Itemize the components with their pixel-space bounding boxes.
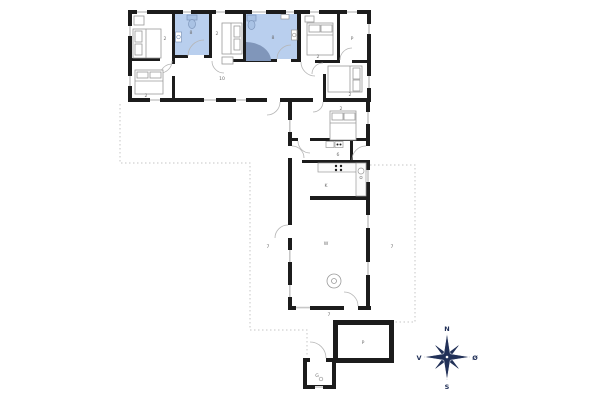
- stove-burner-icon: [340, 165, 342, 167]
- compass-east-label: Ø: [472, 354, 478, 362]
- floor-plan-svg: 2 8 2 2 8 10 2 P 2 2 6 K W 7 7 7 P G N S…: [0, 0, 600, 400]
- room-label-storage: P: [351, 36, 354, 42]
- compass-rose-icon: N S V Ø: [416, 325, 478, 391]
- compass-center: [446, 356, 449, 359]
- toilet-tank-icon: [247, 15, 256, 21]
- room-label-kitchen: K: [324, 183, 328, 189]
- room-label-carport: P: [362, 340, 365, 346]
- bed-nw-icon: [133, 29, 161, 58]
- kitchen-fixtures: [318, 163, 366, 196]
- dresser-ne-icon: [305, 16, 314, 22]
- stove-burner-icon: [335, 165, 337, 167]
- bed-mid-icon: [330, 111, 356, 140]
- wood-stove-icon: [327, 274, 341, 288]
- stove-burner-icon: [340, 169, 342, 171]
- toilet-icon: [248, 21, 255, 30]
- toilet-icon: [189, 20, 196, 29]
- room-label-terrace-east: 7: [391, 244, 394, 250]
- knob-icon: [337, 144, 339, 146]
- terrace-dashed-outline: [120, 104, 415, 356]
- room-label-bedroom-nw: 2: [164, 36, 167, 42]
- shelf-icon: [281, 15, 289, 20]
- compass-south-label: S: [445, 383, 450, 391]
- bed-n-icon: [222, 23, 242, 54]
- room-label-bathroom-large: 8: [272, 35, 275, 41]
- floor-plan-page: 2 8 2 2 8 10 2 P 2 2 6 K W 7 7 7 P G N S…: [0, 0, 600, 400]
- room-label-bedroom-ne: 2: [317, 54, 320, 60]
- knob-icon: [340, 144, 342, 146]
- appliance-icon: [326, 142, 334, 148]
- nightstand-icon: [134, 16, 144, 25]
- bed-sw-icon: [135, 70, 163, 94]
- room-label-terrace-west: 7: [267, 244, 270, 250]
- compass-north-label: N: [444, 325, 449, 333]
- bed-ne-icon: [307, 23, 333, 55]
- room-label-bedroom-mid: 2: [340, 106, 343, 112]
- room-label-living-room: W: [324, 241, 329, 247]
- stove-burner-icon: [335, 169, 337, 171]
- room-label-bedroom-se: 2: [349, 92, 352, 98]
- room-label-hallway: 10: [219, 76, 225, 82]
- room-label-bedroom-n: 2: [216, 31, 219, 37]
- room-label-shed: G: [315, 373, 319, 379]
- compass-west-label: V: [416, 354, 421, 362]
- floor-drain-icon: [319, 377, 323, 381]
- room-label-entry: 6: [337, 152, 340, 158]
- room-label-bedroom-sw: 2: [145, 93, 148, 99]
- room-label-bathroom-small: 8: [190, 30, 193, 36]
- dresser-icon: [222, 57, 233, 64]
- kitchen-sink-icon: [358, 168, 364, 174]
- appliance-icon: [335, 142, 343, 148]
- bed-se-icon: [328, 66, 362, 92]
- entry-appliances: [326, 142, 343, 148]
- room-label-terrace-south: 7: [328, 312, 331, 318]
